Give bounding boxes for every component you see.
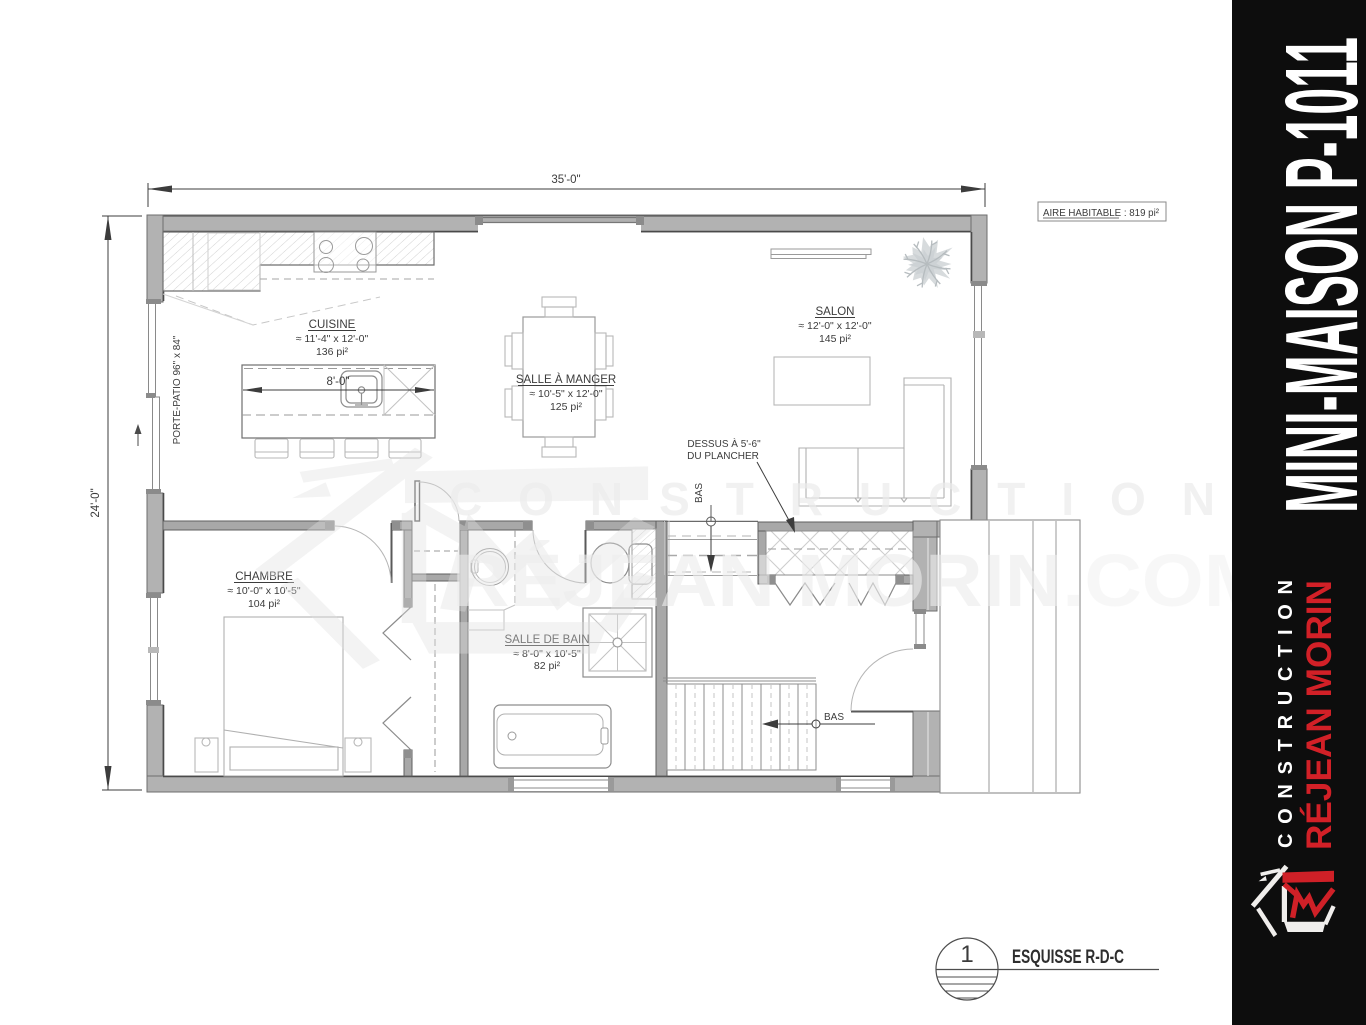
svg-text:MINI-MAISON P-1011: MINI-MAISON P-1011 [1264, 37, 1366, 513]
svg-text:SALLE À MANGER: SALLE À MANGER [516, 373, 616, 386]
svg-text:PORTE-PATIO 96" x 84": PORTE-PATIO 96" x 84" [172, 335, 183, 444]
svg-text:1: 1 [960, 941, 973, 968]
svg-text:82 pi²: 82 pi² [534, 660, 561, 672]
svg-text:≈ 10'-5" x 12'-0": ≈ 10'-5" x 12'-0" [529, 388, 603, 400]
svg-text:≈ 12'-0" x 12'-0": ≈ 12'-0" x 12'-0" [798, 320, 872, 332]
svg-text:125 pi²: 125 pi² [550, 401, 583, 413]
svg-text:145 pi²: 145 pi² [819, 333, 852, 345]
svg-text:104 pi²: 104 pi² [248, 598, 281, 610]
svg-text:CUISINE: CUISINE [309, 319, 356, 331]
svg-text:35'-0": 35'-0" [551, 174, 580, 186]
svg-text:SALON: SALON [816, 306, 855, 318]
svg-text:8'-0": 8'-0" [327, 376, 350, 388]
svg-text:DU PLANCHER: DU PLANCHER [687, 451, 759, 462]
svg-text:AIRE HABITABLE : 819 pi²: AIRE HABITABLE : 819 pi² [1043, 207, 1159, 219]
svg-text:BAS: BAS [694, 483, 705, 503]
svg-text:24'-0": 24'-0" [90, 488, 102, 517]
svg-text:RÉJEAN MORIN.COM: RÉJEAN MORIN.COM [452, 539, 1270, 622]
svg-text:BAS: BAS [824, 712, 844, 723]
svg-text:ESQUISSE R-D-C: ESQUISSE R-D-C [1012, 947, 1124, 968]
svg-text:RÉJEAN MORIN: RÉJEAN MORIN [1299, 580, 1339, 850]
svg-text:136 pi²: 136 pi² [316, 346, 349, 358]
svg-text:DESSUS À 5'-6": DESSUS À 5'-6" [687, 437, 761, 450]
svg-text:≈ 11'-4" x 12'-0": ≈ 11'-4" x 12'-0" [296, 333, 369, 345]
